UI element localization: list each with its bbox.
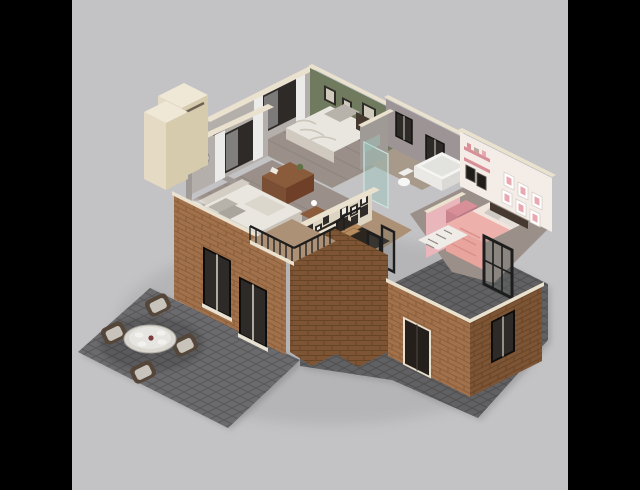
chimney-front-stack: [144, 101, 188, 190]
sheer-curtain: [226, 129, 238, 171]
plate: [157, 330, 166, 335]
table-lamp: [311, 200, 317, 206]
curtain-right: [296, 73, 305, 124]
plate: [138, 341, 147, 346]
floorplan-render: [0, 0, 640, 490]
render-stage: [0, 0, 640, 490]
plate: [135, 332, 144, 337]
curtain-left: [215, 130, 225, 183]
round-dining-table: [124, 325, 176, 353]
plate: [158, 339, 167, 344]
potted-plant: [297, 164, 303, 170]
table-centerpiece: [148, 335, 153, 340]
curtain-right: [253, 109, 263, 162]
